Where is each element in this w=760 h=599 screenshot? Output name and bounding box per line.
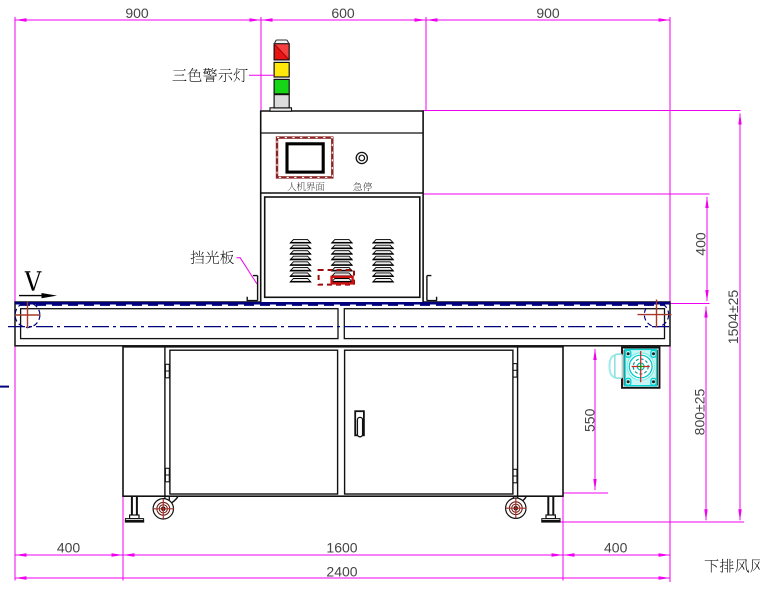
svg-text:550: 550 (582, 408, 598, 432)
svg-text:600: 600 (331, 5, 355, 21)
svg-text:400: 400 (693, 232, 709, 256)
svg-text:1504±25: 1504±25 (725, 290, 741, 345)
svg-text:900: 900 (125, 5, 149, 21)
svg-text:400: 400 (604, 540, 628, 556)
svg-text:800±25: 800±25 (692, 388, 708, 435)
svg-text:1600: 1600 (326, 540, 357, 556)
svg-text:900: 900 (536, 5, 560, 21)
svg-text:400: 400 (57, 540, 81, 556)
svg-text:2400: 2400 (326, 564, 357, 580)
